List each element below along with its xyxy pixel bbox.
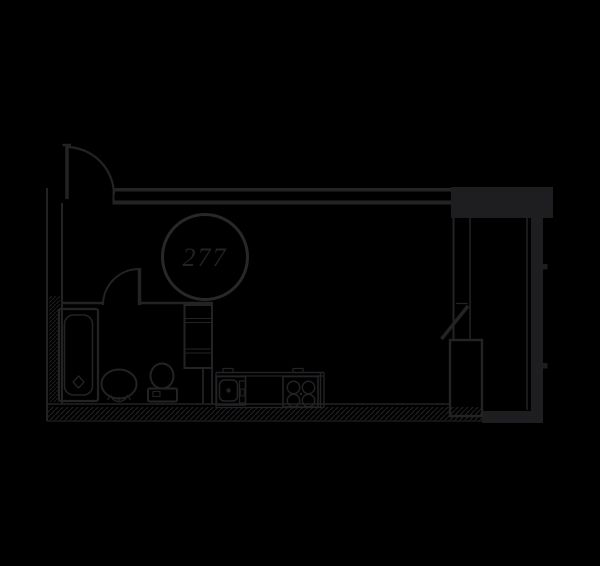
right-wall-solid [531,218,543,423]
window-mullion-lower [543,363,548,369]
top-right-wall-band [451,187,553,218]
top-wall-outer-line [113,188,451,192]
kitchen-sink-drain [226,388,230,392]
window-mullion-upper [543,264,548,270]
floor-plan: 277 [0,0,600,566]
screenshot-root: 277 [0,0,600,566]
bottom-wall-hatch-band [47,407,482,421]
bottom-right-wall-solid [482,411,543,423]
unit-number-label: 277 [183,243,228,272]
background [0,0,600,566]
cooktop-center-dot [300,393,303,396]
top-wall-inner-line [113,201,451,205]
